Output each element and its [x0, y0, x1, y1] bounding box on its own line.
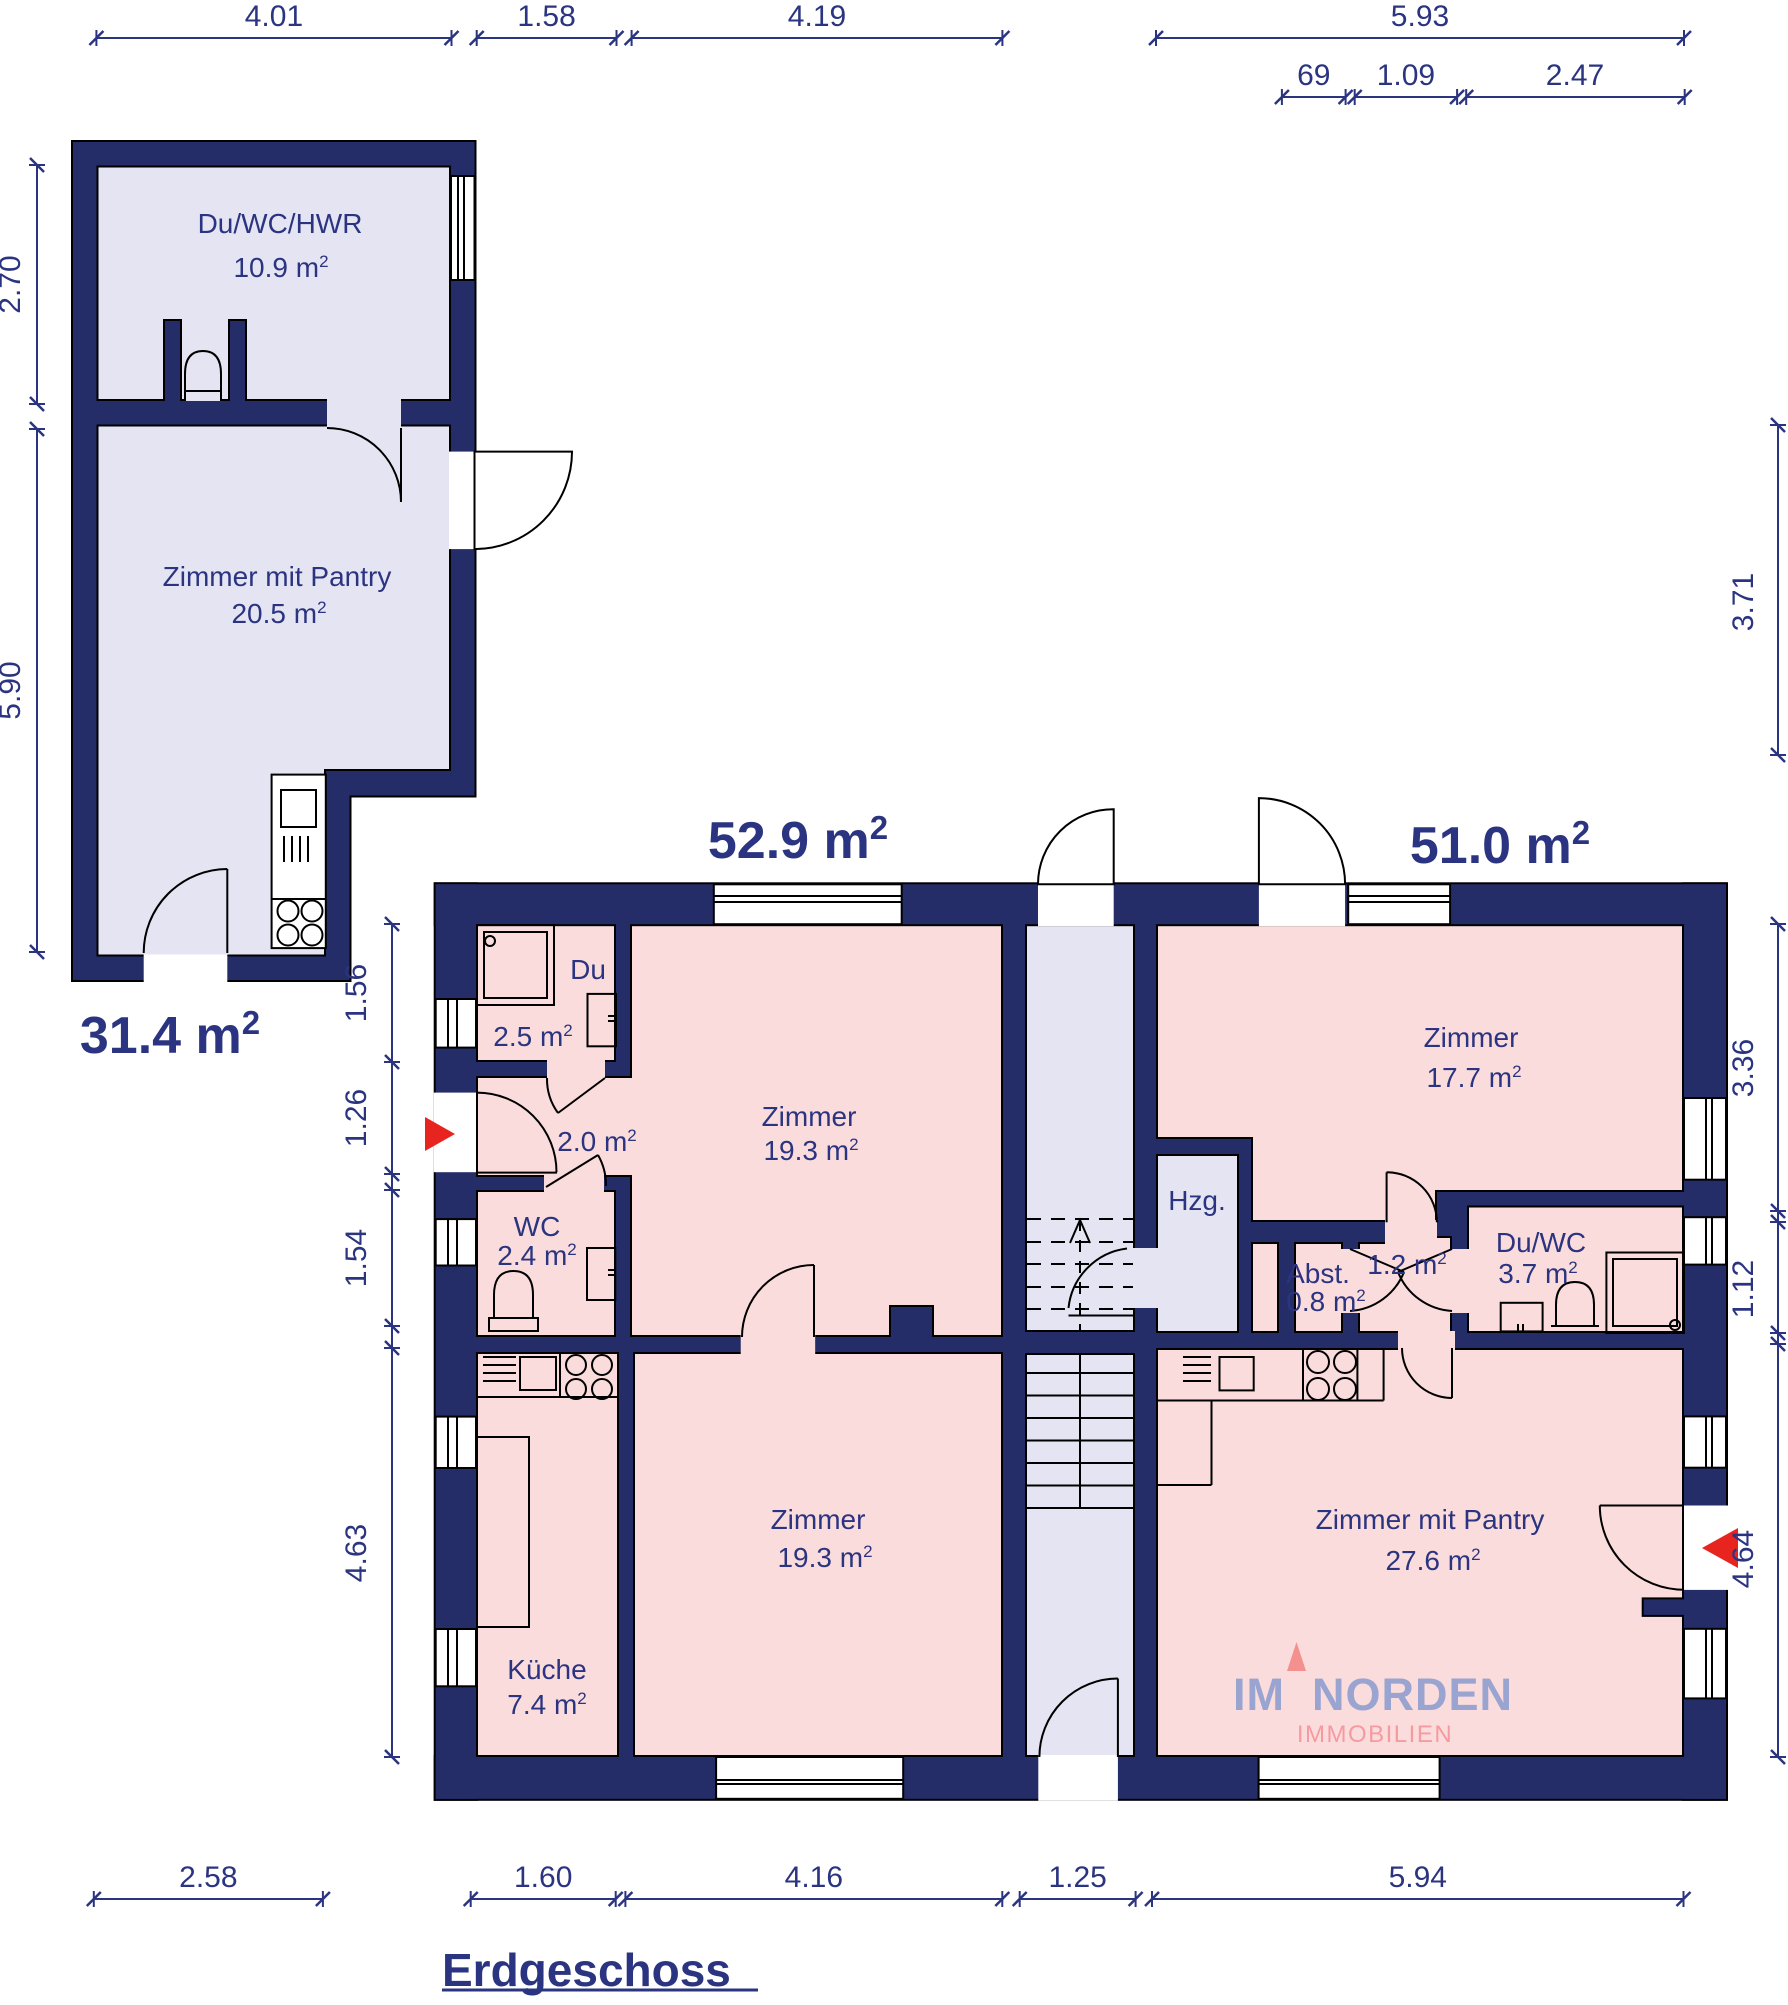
- svg-text:27.6 m2: 27.6 m2: [1385, 1545, 1480, 1576]
- svg-text:Erdgeschoss: Erdgeschoss: [442, 1944, 731, 1996]
- svg-text:52.9 m2: 52.9 m2: [708, 809, 888, 870]
- svg-text:1.26: 1.26: [340, 1089, 373, 1147]
- svg-text:Zimmer: Zimmer: [762, 1101, 857, 1132]
- svg-text:1.60: 1.60: [514, 1861, 572, 1894]
- svg-text:1.09: 1.09: [1377, 59, 1435, 92]
- svg-text:4.16: 4.16: [785, 1861, 843, 1894]
- svg-text:Abst.: Abst.: [1286, 1258, 1350, 1289]
- svg-text:1.58: 1.58: [517, 0, 575, 33]
- svg-text:1.56: 1.56: [340, 964, 373, 1022]
- svg-text:4.19: 4.19: [788, 0, 846, 33]
- svg-text:IMMOBILIEN: IMMOBILIEN: [1297, 1721, 1453, 1748]
- svg-text:4.63: 4.63: [340, 1524, 373, 1582]
- svg-text:3.36: 3.36: [1727, 1039, 1760, 1097]
- svg-text:3.7 m2: 3.7 m2: [1498, 1258, 1578, 1289]
- svg-text:Zimmer: Zimmer: [1424, 1022, 1519, 1053]
- svg-text:2.70: 2.70: [0, 255, 27, 313]
- svg-text:Du/WC: Du/WC: [1496, 1227, 1586, 1258]
- svg-text:17.7 m2: 17.7 m2: [1426, 1062, 1521, 1093]
- svg-text:Du: Du: [570, 954, 606, 985]
- svg-text:2.4 m2: 2.4 m2: [497, 1240, 577, 1271]
- svg-text:19.3 m2: 19.3 m2: [763, 1135, 858, 1166]
- svg-text:5.93: 5.93: [1391, 0, 1449, 33]
- svg-text:2.0 m2: 2.0 m2: [557, 1126, 637, 1157]
- svg-text:2.47: 2.47: [1546, 59, 1604, 92]
- svg-text:Hzg.: Hzg.: [1168, 1185, 1226, 1216]
- svg-text:31.4 m2: 31.4 m2: [80, 1004, 260, 1065]
- svg-text:IM NORDEN: IM NORDEN: [1233, 1669, 1513, 1720]
- svg-text:7.4 m2: 7.4 m2: [507, 1689, 587, 1720]
- svg-text:Zimmer mit Pantry: Zimmer mit Pantry: [163, 561, 392, 592]
- svg-text:1.12: 1.12: [1727, 1260, 1760, 1318]
- svg-text:1.2 m2: 1.2 m2: [1367, 1249, 1447, 1280]
- svg-text:19.3 m2: 19.3 m2: [777, 1542, 872, 1573]
- svg-text:WC: WC: [514, 1211, 561, 1242]
- svg-text:1.54: 1.54: [340, 1229, 373, 1287]
- svg-text:20.5 m2: 20.5 m2: [231, 598, 326, 629]
- svg-text:Du/WC/HWR: Du/WC/HWR: [198, 208, 363, 239]
- svg-text:1.25: 1.25: [1048, 1861, 1106, 1894]
- svg-text:2.5 m2: 2.5 m2: [493, 1021, 573, 1052]
- svg-text:69: 69: [1297, 59, 1330, 92]
- svg-text:10.9 m2: 10.9 m2: [233, 252, 328, 283]
- svg-text:Küche: Küche: [507, 1654, 586, 1685]
- svg-text:4.64: 4.64: [1727, 1530, 1760, 1588]
- svg-text:0.8 m2: 0.8 m2: [1286, 1286, 1366, 1317]
- svg-text:5.94: 5.94: [1389, 1861, 1447, 1894]
- svg-text:Zimmer mit Pantry: Zimmer mit Pantry: [1316, 1504, 1545, 1535]
- svg-text:4.01: 4.01: [245, 0, 303, 33]
- svg-text:51.0 m2: 51.0 m2: [1410, 814, 1590, 875]
- svg-text:2.58: 2.58: [179, 1861, 237, 1894]
- svg-text:Zimmer: Zimmer: [771, 1504, 866, 1535]
- svg-text:5.90: 5.90: [0, 661, 27, 719]
- svg-text:3.71: 3.71: [1727, 573, 1760, 631]
